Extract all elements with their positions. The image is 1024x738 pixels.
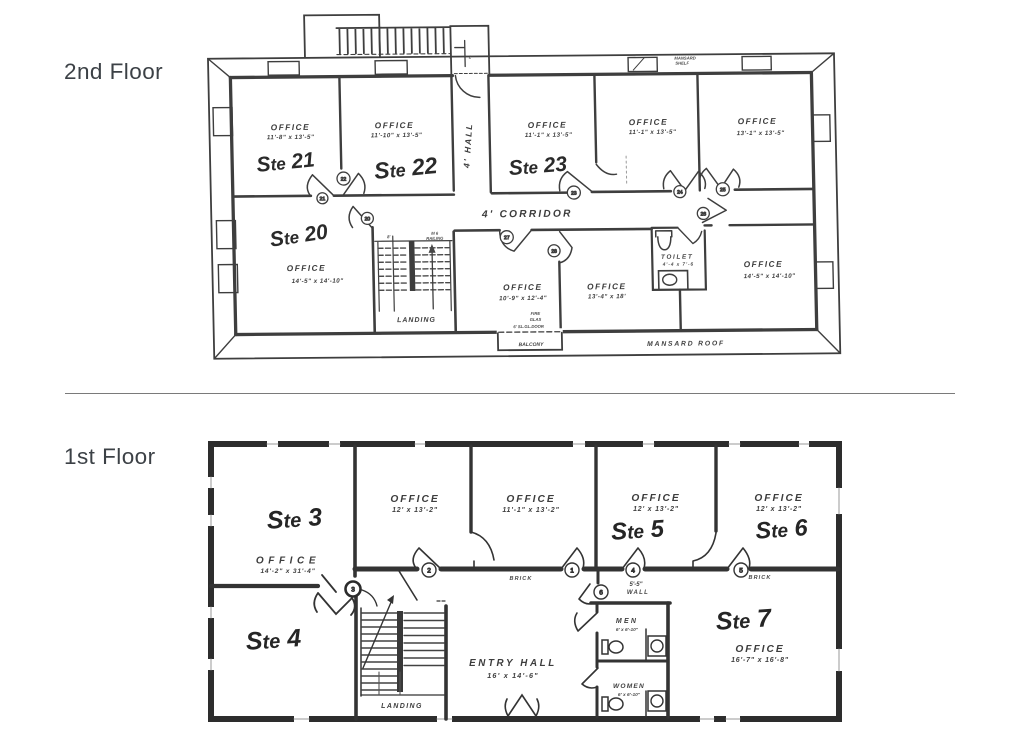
svg-text:MANSARD ROOF: MANSARD ROOF (647, 340, 725, 348)
svg-text:OFFICE: OFFICE (629, 117, 669, 127)
svg-text:FIRE: FIRE (531, 311, 541, 316)
svg-text:Ste 23: Ste 23 (508, 153, 569, 181)
svg-text:11'-8" x 13'-5": 11'-8" x 13'-5" (267, 134, 315, 141)
svg-text:OFFICE: OFFICE (375, 120, 415, 130)
svg-text:WALL: WALL (627, 590, 649, 596)
svg-text:OFFICE: OFFICE (735, 644, 784, 655)
svg-text:OFFICE: OFFICE (256, 556, 320, 567)
svg-text:12' x 13'-2": 12' x 13'-2" (392, 507, 438, 514)
svg-text:11'-10" x 13'-5": 11'-10" x 13'-5" (371, 132, 423, 139)
svg-text:BRICK: BRICK (749, 575, 772, 581)
svg-text:SHELF: SHELF (675, 61, 689, 66)
svg-text:23: 23 (571, 191, 577, 197)
svg-text:OFFICE: OFFICE (503, 282, 543, 292)
svg-text:OFFICE: OFFICE (631, 493, 680, 504)
svg-text:5: 5 (739, 568, 743, 575)
svg-text:16' x 14'-6": 16' x 14'-6" (487, 671, 539, 680)
svg-text:21: 21 (320, 196, 326, 202)
svg-text:LANDING: LANDING (397, 317, 436, 324)
svg-text:6' SL.GL.DOOR: 6' SL.GL.DOOR (513, 324, 544, 329)
svg-text:OFFICE: OFFICE (506, 494, 555, 505)
svg-text:MEN: MEN (616, 618, 638, 625)
svg-text:11'-1" x 13'-5": 11'-1" x 13'-5" (629, 129, 677, 136)
svg-text:4' CORRIDOR: 4' CORRIDOR (481, 209, 573, 221)
svg-text:16'-7" x 16'-8": 16'-7" x 16'-8" (731, 657, 789, 664)
svg-text:13'-4" x 18': 13'-4" x 18' (588, 293, 626, 300)
svg-text:Ste 7: Ste 7 (715, 604, 773, 636)
svg-text:26: 26 (700, 211, 706, 217)
svg-text:12' x 13'-2": 12' x 13'-2" (756, 506, 802, 513)
svg-text:27: 27 (504, 235, 510, 241)
svg-text:14'-5" x 14'-10": 14'-5" x 14'-10" (744, 273, 796, 280)
svg-text:OFFICE: OFFICE (587, 281, 627, 291)
svg-text:1: 1 (570, 568, 574, 575)
svg-text:6: 6 (599, 590, 603, 597)
svg-text:Ste 21: Ste 21 (255, 148, 315, 176)
svg-text:OFFICE: OFFICE (287, 263, 327, 273)
svg-text:OFFICE: OFFICE (744, 259, 784, 269)
svg-text:4' HALL: 4' HALL (461, 122, 474, 169)
svg-text:Ste 6: Ste 6 (754, 514, 809, 544)
svg-text:14'-5" x 14'-10": 14'-5" x 14'-10" (292, 278, 344, 285)
svg-text:OFFICE: OFFICE (390, 494, 439, 505)
svg-text:11'-1" x 13'-5": 11'-1" x 13'-5" (525, 132, 573, 139)
svg-text:25: 25 (720, 187, 726, 193)
svg-text:OFFICE: OFFICE (754, 493, 803, 504)
svg-text:11'-1" x 13'-2": 11'-1" x 13'-2" (502, 507, 559, 514)
svg-text:Ste 4: Ste 4 (245, 624, 302, 656)
svg-text:6' x 6'-10": 6' x 6'-10" (618, 692, 641, 698)
svg-text:8': 8' (387, 234, 391, 239)
svg-text:22: 22 (341, 177, 347, 183)
svg-text:13'-1" x 13'-5": 13'-1" x 13'-5" (737, 130, 785, 137)
svg-text:BRICK: BRICK (510, 576, 533, 582)
svg-text:10'-9" x 12'-4": 10'-9" x 12'-4" (499, 295, 547, 302)
svg-text:3: 3 (351, 587, 355, 594)
svg-text:GLAS: GLAS (530, 317, 542, 322)
svg-text:24: 24 (677, 190, 683, 196)
svg-text:BALCONY: BALCONY (519, 342, 545, 348)
svg-text:Ste 3: Ste 3 (266, 503, 323, 535)
svg-text:20: 20 (365, 216, 371, 222)
svg-text:2: 2 (427, 568, 431, 575)
svg-text:Ste 22: Ste 22 (373, 152, 439, 184)
svg-text:Ste 20: Ste 20 (268, 220, 330, 251)
svg-text:WOMEN: WOMEN (613, 683, 645, 690)
svg-text:TOILET: TOILET (661, 254, 694, 261)
svg-text:12' x 13'-2": 12' x 13'-2" (633, 506, 679, 513)
svg-text:4'-4 x 7'-6: 4'-4 x 7'-6 (662, 262, 695, 268)
svg-text:5'-5": 5'-5" (630, 582, 643, 588)
svg-text:4: 4 (631, 568, 635, 575)
svg-text:OFFICE: OFFICE (271, 122, 311, 132)
svg-text:ENTRY HALL: ENTRY HALL (469, 658, 557, 669)
svg-text:OFFICE: OFFICE (528, 120, 568, 130)
svg-text:28: 28 (551, 249, 557, 255)
svg-text:Ste 5: Ste 5 (610, 515, 665, 546)
svg-text:14'-2" x 31'-4": 14'-2" x 31'-4" (260, 568, 315, 575)
svg-text:6' x 6'-10": 6' x 6'-10" (616, 627, 639, 633)
svg-text:OFFICE: OFFICE (738, 116, 778, 126)
svg-text:LANDING: LANDING (381, 703, 423, 710)
svg-text:RAILING: RAILING (426, 236, 444, 241)
